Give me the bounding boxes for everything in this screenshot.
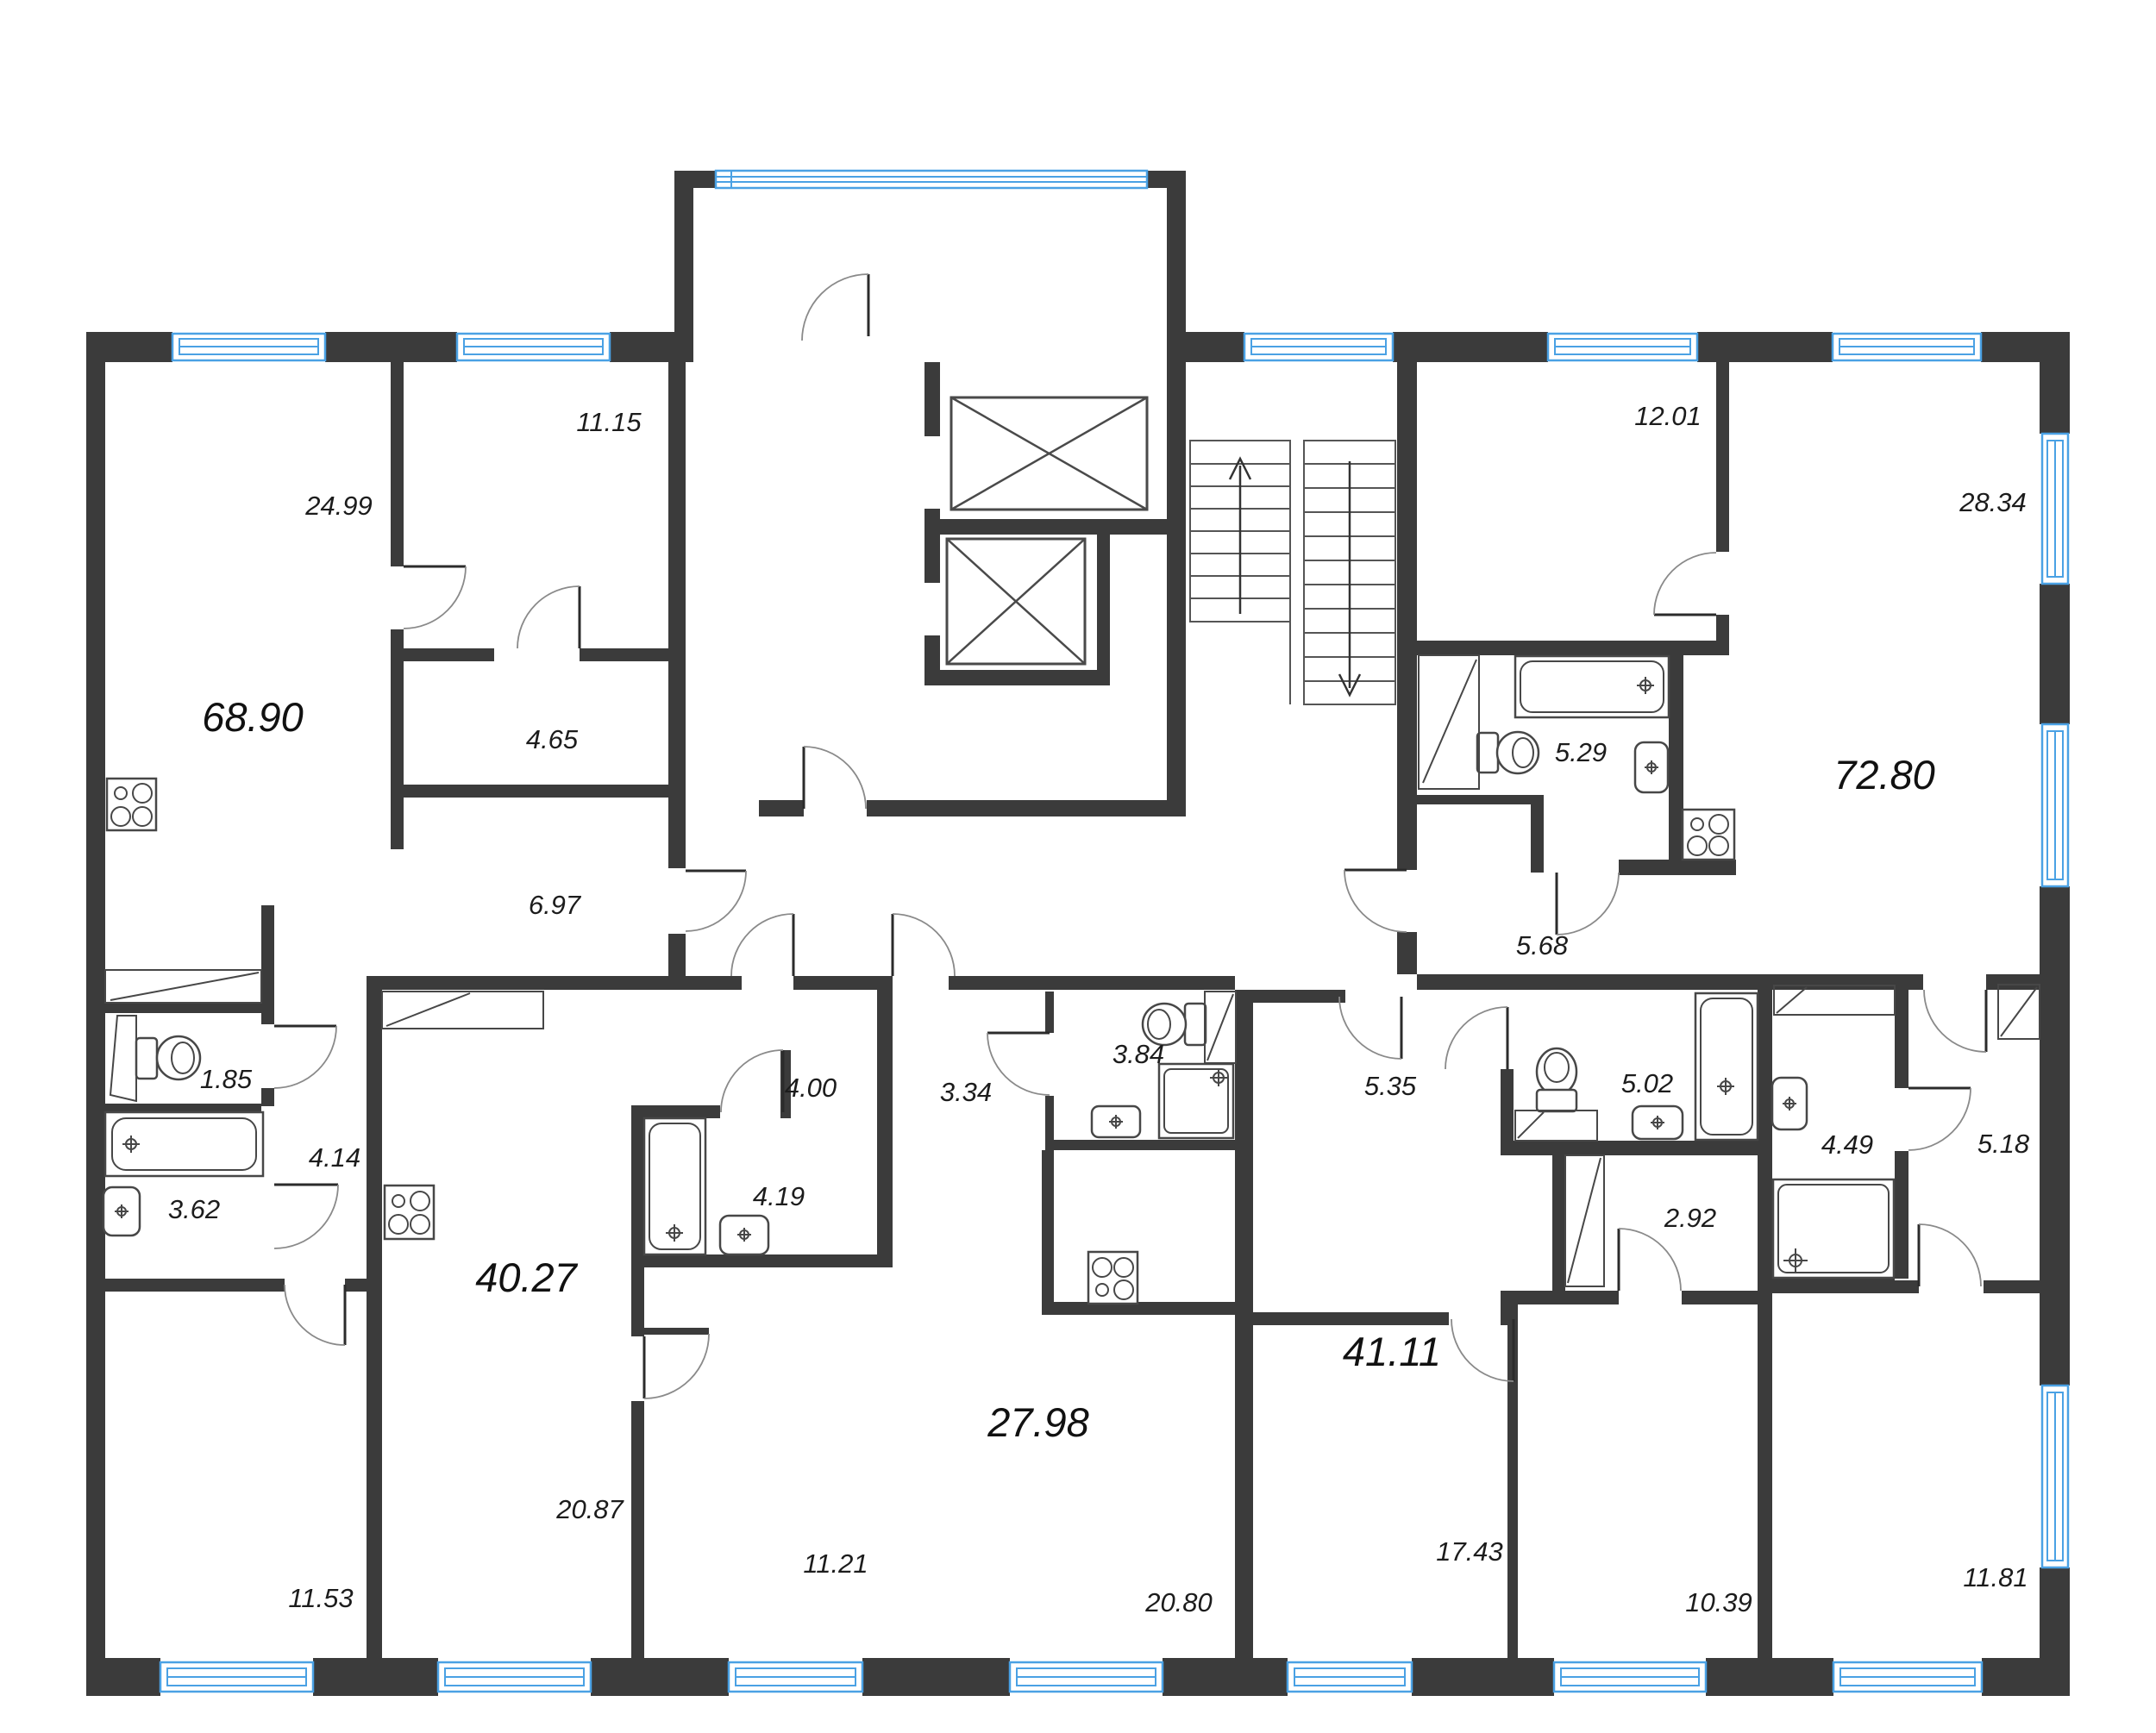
floor-plan-drawing: 68.90 40.27 27.98 41.11 72.80 24.99 11.1… — [0, 0, 2156, 1733]
door-arc — [686, 871, 746, 931]
toilet-icon — [136, 1036, 200, 1079]
window — [1010, 1662, 1163, 1692]
window — [2042, 1386, 2068, 1567]
wardrobe-icon — [1419, 655, 1479, 789]
door-arc — [1557, 873, 1619, 935]
vanity-icon — [110, 1016, 136, 1101]
room-area-label: 4.19 — [753, 1181, 805, 1211]
window — [457, 334, 610, 360]
room-area-label: 17.43 — [1436, 1536, 1503, 1567]
room-area-label: 3.84 — [1112, 1039, 1164, 1069]
door-arc — [644, 1334, 709, 1398]
door-arc — [731, 914, 793, 976]
door-arc — [404, 566, 466, 629]
door-arc — [987, 1033, 1050, 1095]
wardrobe-icon — [1774, 985, 1895, 1015]
apartment-total-label: 41.11 — [1343, 1329, 1441, 1374]
window — [1833, 334, 1981, 360]
door-arc — [1924, 990, 1986, 1052]
bathtub-icon — [105, 1112, 263, 1176]
sink-icon — [720, 1216, 768, 1254]
door-arc — [517, 586, 580, 648]
window — [1288, 1662, 1412, 1692]
door-arc — [1619, 1229, 1681, 1291]
door-arc — [804, 747, 866, 809]
stove-icon — [107, 779, 156, 830]
room-area-label: 11.81 — [1963, 1562, 2028, 1592]
room-area-label: 20.87 — [555, 1494, 624, 1524]
door-arc — [274, 1026, 336, 1088]
window — [160, 1662, 313, 1692]
window — [1554, 1662, 1706, 1692]
room-area-label: 3.62 — [168, 1194, 220, 1224]
room-area-label: 5.18 — [1977, 1129, 2030, 1159]
room-area-label: 20.80 — [1144, 1587, 1213, 1617]
window — [172, 334, 325, 360]
window — [2042, 724, 2068, 886]
sink-icon — [1635, 742, 1668, 792]
wardrobe-icon — [1998, 985, 2040, 1039]
window — [729, 1662, 862, 1692]
window — [438, 1662, 591, 1692]
door-arc — [1445, 1007, 1507, 1069]
wardrobe-icon — [105, 970, 261, 1003]
room-area-label: 24.99 — [304, 491, 373, 521]
bathtub-icon — [644, 1118, 705, 1254]
bathtub-icon — [1695, 993, 1758, 1140]
room-area-label: 1.85 — [200, 1064, 253, 1094]
room-area-label: 4.65 — [526, 724, 579, 754]
room-area-label: 5.29 — [1555, 737, 1607, 767]
window — [1244, 334, 1393, 360]
door-arc — [1339, 997, 1401, 1059]
room-area-label: 4.49 — [1821, 1129, 1873, 1160]
window — [2042, 434, 2068, 584]
door-arc — [1344, 870, 1407, 932]
toilet-icon — [1537, 1048, 1576, 1111]
window — [1833, 1662, 1982, 1692]
bathtub-icon — [1515, 656, 1669, 717]
door-arc — [1451, 1319, 1514, 1381]
stove-icon — [1088, 1252, 1138, 1304]
wardrobe-icon — [1515, 1110, 1597, 1141]
apartment-total-label: 68.90 — [202, 694, 304, 740]
door-arc — [1654, 553, 1716, 615]
room-area-label: 4.00 — [785, 1073, 837, 1103]
room-area-label: 28.34 — [1959, 487, 2027, 517]
room-area-label: 5.02 — [1621, 1068, 1673, 1098]
shower-icon — [1773, 1179, 1894, 1278]
room-area-label: 11.53 — [288, 1583, 353, 1613]
door-arc — [285, 1285, 345, 1345]
room-area-label: 4.14 — [309, 1142, 360, 1173]
apartment-total-label: 72.80 — [1833, 752, 1935, 798]
door-arc — [1919, 1224, 1981, 1286]
elevator-icon — [951, 397, 1147, 510]
shower-icon — [1159, 1064, 1233, 1138]
sink-icon — [1772, 1078, 1807, 1129]
stove-icon — [1683, 810, 1734, 860]
vestibule-window — [716, 171, 1147, 188]
apartment-total-label: 40.27 — [475, 1254, 578, 1300]
room-area-label: 11.15 — [576, 407, 642, 437]
elevator-icon — [947, 539, 1085, 664]
wardrobe-icon — [1565, 1155, 1604, 1286]
room-area-label: 10.39 — [1685, 1587, 1752, 1617]
door-arc — [893, 914, 955, 976]
floor-plan-page: 68.90 40.27 27.98 41.11 72.80 24.99 11.1… — [0, 0, 2156, 1733]
room-area-label: 3.34 — [940, 1077, 992, 1107]
room-area-label: 5.68 — [1516, 930, 1569, 960]
sink-icon — [1633, 1106, 1683, 1139]
toilet-icon — [1477, 732, 1539, 773]
door-arc — [721, 1050, 783, 1112]
door-arc — [274, 1185, 338, 1248]
apartment-total-label: 27.98 — [987, 1399, 1089, 1445]
wardrobe-icon — [1205, 992, 1236, 1063]
room-area-label: 2.92 — [1664, 1203, 1716, 1233]
stairs-icon — [1190, 441, 1395, 704]
room-area-label: 11.21 — [803, 1548, 868, 1579]
sink-icon — [1092, 1106, 1140, 1137]
door-arc — [802, 274, 868, 341]
sink-icon — [103, 1187, 140, 1236]
room-area-label: 6.97 — [529, 890, 582, 920]
stove-icon — [385, 1186, 434, 1239]
wardrobe-icon — [382, 992, 543, 1029]
door-arc — [1908, 1088, 1971, 1150]
room-area-label: 5.35 — [1364, 1071, 1417, 1101]
room-area-label: 12.01 — [1634, 401, 1702, 431]
window — [1548, 334, 1697, 360]
